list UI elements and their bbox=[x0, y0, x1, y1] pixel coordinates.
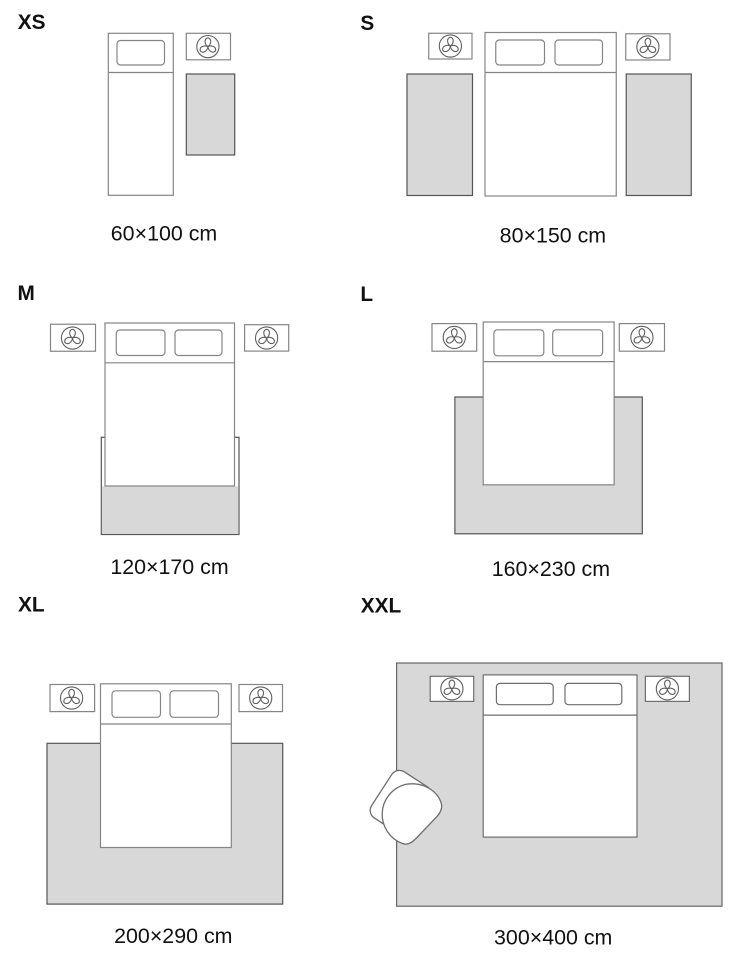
svg-text:XS: XS bbox=[18, 11, 46, 34]
svg-text:120×170 cm: 120×170 cm bbox=[110, 555, 228, 579]
svg-text:60×100 cm: 60×100 cm bbox=[111, 222, 217, 246]
svg-text:XXL: XXL bbox=[361, 595, 402, 618]
svg-text:L: L bbox=[360, 283, 373, 306]
svg-text:XL: XL bbox=[18, 594, 45, 617]
svg-text:200×290 cm: 200×290 cm bbox=[114, 924, 232, 948]
svg-text:160×230 cm: 160×230 cm bbox=[492, 557, 610, 581]
svg-text:M: M bbox=[18, 282, 35, 305]
svg-text:300×400 cm: 300×400 cm bbox=[494, 925, 612, 949]
svg-text:S: S bbox=[360, 12, 374, 35]
svg-text:80×150 cm: 80×150 cm bbox=[500, 223, 606, 247]
